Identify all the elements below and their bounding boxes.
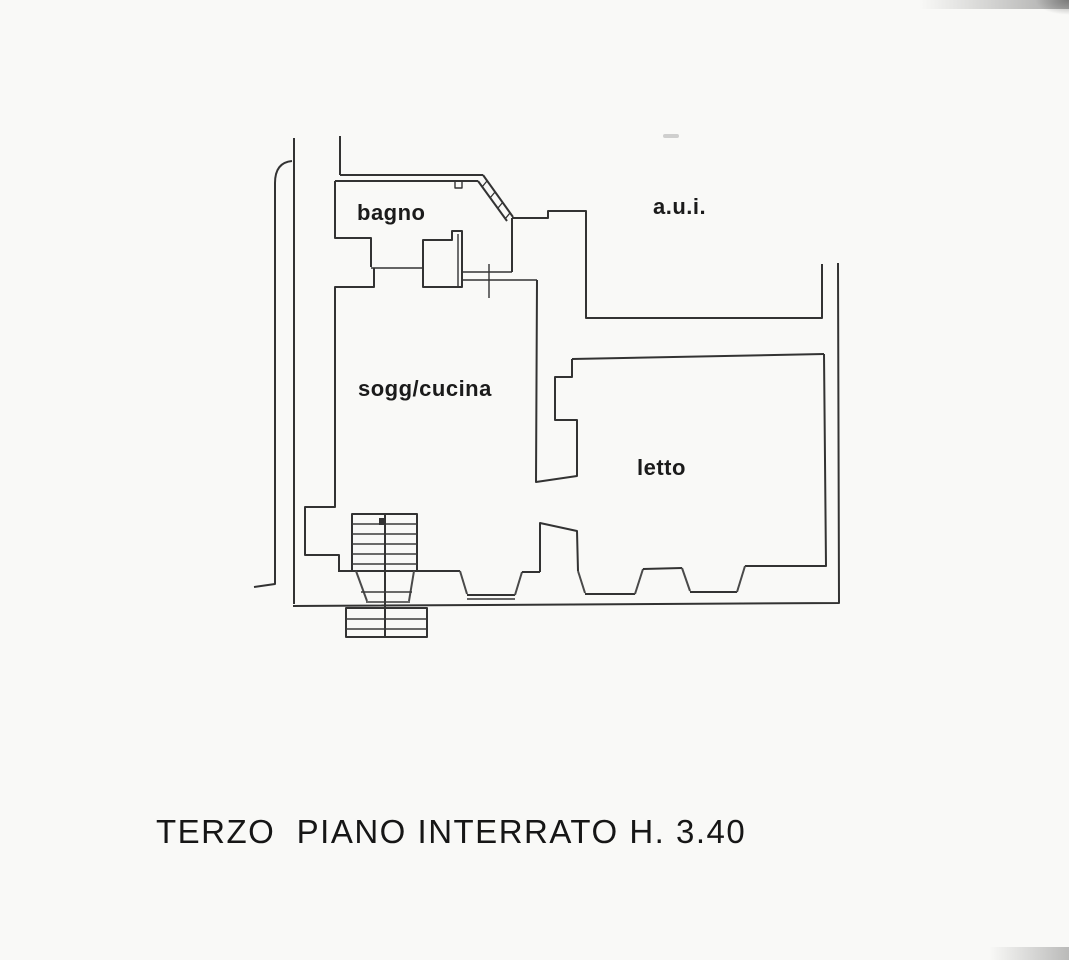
- window2-splay-right: [635, 569, 643, 594]
- wall-letto-top: [572, 354, 824, 359]
- window3-splay-left: [682, 568, 690, 591]
- wall-diagonal-upper: [483, 175, 513, 217]
- wall-left-outer: [254, 161, 292, 587]
- stairs-taper-left: [356, 571, 367, 601]
- diagonal-hatch-mark: [490, 192, 495, 198]
- stairs-taper-right: [409, 571, 414, 601]
- closet-block: [423, 231, 462, 287]
- window1-splay-left: [460, 571, 467, 594]
- window3-splay-right: [737, 566, 745, 592]
- diagonal-hatch-mark: [482, 181, 487, 187]
- floor-plan-page: bagno a.u.i. sogg/cucina letto TERZO PIA…: [0, 0, 1069, 960]
- diagonal-hatch-mark: [498, 202, 503, 208]
- room-label-sogg-cucina: sogg/cucina: [358, 376, 492, 402]
- wall-sogg-left: [305, 268, 374, 572]
- stairs-lower-outline: [346, 608, 427, 637]
- room-label-aui: a.u.i.: [653, 194, 706, 220]
- window2-splay-left: [578, 571, 585, 593]
- pillar-between-rooms: [540, 523, 578, 572]
- window1-splay-right: [515, 572, 522, 595]
- wall-partition-letto-left: [536, 280, 577, 482]
- plan-caption: TERZO PIANO INTERRATO H. 3.40: [156, 813, 746, 851]
- diagonal-hatch-mark: [505, 213, 510, 219]
- room-label-bagno: bagno: [357, 200, 426, 226]
- room-label-letto: letto: [637, 455, 686, 481]
- wall-top-notch: [455, 181, 462, 188]
- wall-aui-boundary: [512, 211, 822, 318]
- wall-letto-right-bottom: [745, 354, 826, 566]
- wall-bottom-inner-letto: [643, 568, 682, 569]
